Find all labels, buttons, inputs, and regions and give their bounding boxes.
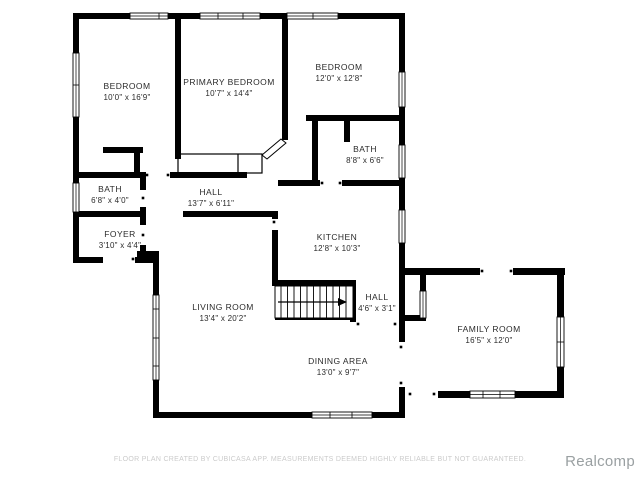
room-dims: 8'8" x 6'6" xyxy=(346,155,384,166)
room-dims: 12'0" x 12'8" xyxy=(315,73,362,84)
room-label-family-room: FAMILY ROOM16'5" x 12'0" xyxy=(457,324,520,346)
room-dims: 10'7" x 14'4" xyxy=(183,88,274,99)
realcomp-watermark: Realcomp xyxy=(565,453,635,470)
room-label-bedroom-2: BEDROOM12'0" x 12'8" xyxy=(315,62,362,84)
interior-walls xyxy=(73,19,426,322)
room-label-bath-left: BATH6'8" x 4'0" xyxy=(91,184,129,206)
room-dims: 12'8" x 10'3" xyxy=(313,243,360,254)
room-dims: 6'8" x 4'0" xyxy=(91,195,129,206)
room-name: HALL xyxy=(188,187,235,198)
room-label-hall-small: HALL4'6" x 3'1" xyxy=(358,292,396,314)
room-name: BEDROOM xyxy=(315,62,362,73)
room-name: KITCHEN xyxy=(313,232,360,243)
closet-outline xyxy=(178,154,262,173)
disclaimer-text: FLOOR PLAN CREATED BY CUBICASA APP. MEAS… xyxy=(0,456,640,463)
room-label-hall-main: HALL13'7" x 6'11" xyxy=(188,187,235,209)
room-name: BEDROOM xyxy=(103,81,150,92)
room-label-primary-bedroom: PRIMARY BEDROOM10'7" x 14'4" xyxy=(183,77,274,99)
room-label-dining-area: DINING AREA13'0" x 9'7" xyxy=(308,356,368,378)
room-label-bath-upper: BATH8'8" x 6'6" xyxy=(346,144,384,166)
room-dims: 16'5" x 12'0" xyxy=(457,335,520,346)
room-name: BATH xyxy=(346,144,384,155)
room-name: FOYER xyxy=(99,229,141,240)
room-label-foyer: FOYER3'10" x 4'4" xyxy=(99,229,141,251)
angled-wall xyxy=(262,139,286,159)
room-name: LIVING ROOM xyxy=(192,302,254,313)
room-dims: 3'10" x 4'4" xyxy=(99,240,141,251)
room-name: HALL xyxy=(358,292,396,303)
room-label-bedroom-1: BEDROOM10'0" x 16'9" xyxy=(103,81,150,103)
room-name: BATH xyxy=(91,184,129,195)
room-dims: 13'0" x 9'7" xyxy=(308,367,368,378)
room-label-living-room: LIVING ROOM13'4" x 20'2" xyxy=(192,302,254,324)
room-label-kitchen: KITCHEN12'8" x 10'3" xyxy=(313,232,360,254)
staircase xyxy=(275,286,353,320)
room-name: DINING AREA xyxy=(308,356,368,367)
room-dims: 13'7" x 6'11" xyxy=(188,198,235,209)
room-dims: 10'0" x 16'9" xyxy=(103,92,150,103)
room-name: PRIMARY BEDROOM xyxy=(183,77,274,88)
floorplan-page: BEDROOM10'0" x 16'9" PRIMARY BEDROOM10'7… xyxy=(0,0,640,480)
room-dims: 4'6" x 3'1" xyxy=(358,303,396,314)
room-dims: 13'4" x 20'2" xyxy=(192,313,254,324)
room-name: FAMILY ROOM xyxy=(457,324,520,335)
